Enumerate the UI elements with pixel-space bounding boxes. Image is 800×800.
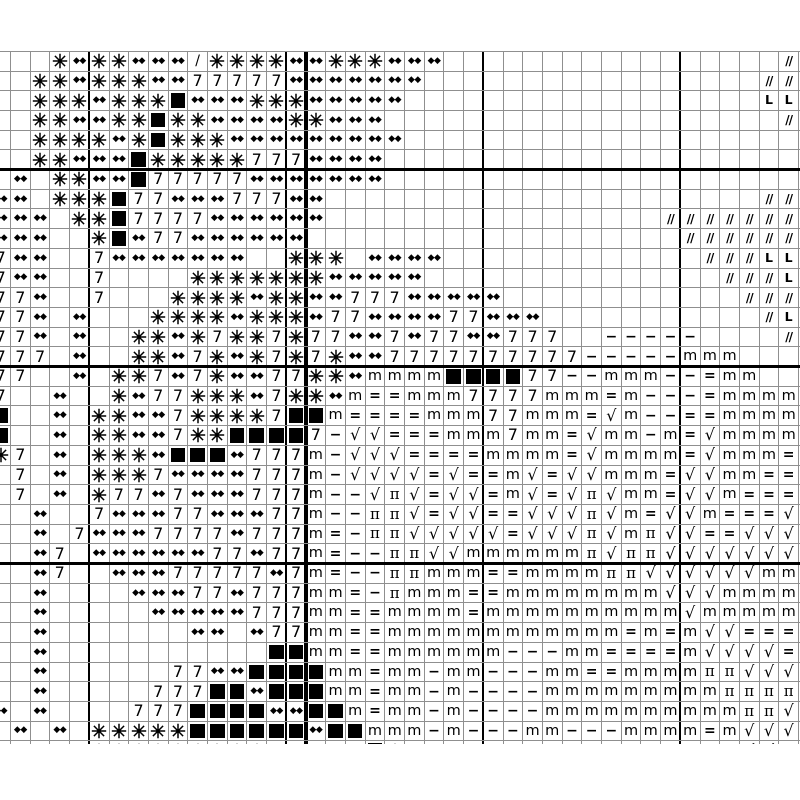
double-diamond-icon: ◆◆ — [349, 175, 362, 184]
grid-cell: ◆◆ — [89, 150, 109, 170]
grid-line-horizontal — [0, 168, 800, 170]
minus-symbol: − — [665, 330, 677, 344]
double-diamond-icon: ◆◆ — [290, 76, 303, 85]
letter-m-symbol: m — [565, 645, 579, 660]
grid-cell: 7 — [385, 327, 405, 347]
letter-m-symbol: m — [309, 507, 323, 522]
grid-cell: ◆◆ — [247, 170, 267, 190]
digit-seven-symbol: 7 — [291, 506, 301, 522]
grid-cell: = — [326, 524, 346, 544]
digit-seven-symbol: 7 — [508, 408, 518, 424]
grid-cell: m — [779, 386, 799, 406]
eight-spoke-star-icon — [170, 723, 186, 739]
grid-cell: − — [503, 642, 523, 662]
double-diamond-icon: ◆◆ — [309, 214, 322, 223]
digit-seven-symbol: 7 — [153, 526, 163, 542]
letter-m-symbol: m — [447, 428, 461, 443]
square-root-symbol: √ — [705, 644, 715, 660]
grid-cell: − — [464, 701, 484, 721]
grid-cell: = — [345, 603, 365, 623]
double-slash-symbol: // — [706, 252, 713, 264]
pi-symbol: π — [390, 507, 400, 522]
grid-cell: m — [720, 721, 740, 741]
double-diamond-icon: ◆◆ — [53, 726, 66, 735]
grid-line-vertical — [719, 51, 720, 744]
square-root-symbol: √ — [468, 487, 478, 503]
grid-cell: ◆◆ — [30, 268, 50, 288]
square-root-symbol: √ — [724, 624, 734, 640]
digit-seven-symbol: 7 — [0, 368, 6, 384]
eight-spoke-star-icon — [71, 211, 87, 227]
grid-cell: = — [562, 426, 582, 446]
letter-m-symbol: m — [722, 389, 736, 404]
letter-m-symbol: m — [742, 448, 756, 463]
grid-cell: 7 — [523, 386, 543, 406]
grid-cell: ◆◆ — [50, 485, 70, 505]
eight-spoke-star-icon — [268, 309, 284, 325]
grid-cell: m — [405, 682, 425, 702]
grid-cell: 7 — [424, 327, 444, 347]
grid-cell — [188, 130, 208, 150]
grid-cell: √ — [779, 721, 799, 741]
grid-cell: ◆◆ — [188, 603, 208, 623]
double-diamond-icon: ◆◆ — [309, 313, 322, 322]
grid-cell: m — [306, 485, 326, 505]
digit-seven-symbol: 7 — [193, 506, 203, 522]
digit-seven-symbol: 7 — [311, 743, 321, 744]
grid-cell: ◆◆ — [345, 327, 365, 347]
double-slash-symbol: // — [766, 292, 773, 304]
grid-cell: L — [759, 248, 779, 268]
grid-cell: m — [602, 583, 622, 603]
digit-seven-symbol: 7 — [173, 526, 183, 542]
grid-cell: 7 — [424, 347, 444, 367]
digit-seven-symbol: 7 — [193, 565, 203, 581]
double-slash-symbol: // — [785, 331, 792, 343]
letter-m-symbol: m — [585, 586, 599, 601]
equals-symbol: = — [369, 645, 381, 659]
grid-cell: m — [582, 623, 602, 643]
grid-cell: m — [720, 583, 740, 603]
grid-cell: 7 — [267, 623, 287, 643]
grid-cell: m — [503, 544, 523, 564]
grid-cell — [247, 406, 267, 426]
double-diamond-icon: ◆◆ — [231, 254, 244, 263]
grid-cell: √ — [444, 524, 464, 544]
letter-m-symbol: m — [742, 468, 756, 483]
grid-cell: ◆◆ — [247, 504, 267, 524]
square-root-symbol: √ — [705, 467, 715, 483]
grid-cell: // — [759, 189, 779, 209]
grid-cell: 7 — [89, 288, 109, 308]
grid-cell: = — [759, 485, 779, 505]
digit-seven-symbol: 7 — [252, 467, 262, 483]
grid-cell: m — [385, 662, 405, 682]
equals-symbol: = — [665, 488, 677, 502]
pi-symbol: π — [705, 664, 715, 679]
grid-cell: = — [700, 721, 720, 741]
double-diamond-icon: ◆◆ — [172, 608, 185, 617]
grid-cell: m — [464, 406, 484, 426]
letter-m-symbol: m — [742, 586, 756, 601]
grid-cell: ◆◆ — [345, 130, 365, 150]
letter-m-symbol: m — [506, 586, 520, 601]
digit-seven-symbol: 7 — [291, 447, 301, 463]
letter-m-symbol: m — [525, 546, 539, 561]
grid-cell — [168, 288, 188, 308]
eight-spoke-star-icon — [111, 743, 127, 744]
grid-cell: ◆◆ — [385, 71, 405, 91]
grid-cell — [267, 91, 287, 111]
grid-cell: // — [759, 268, 779, 288]
filled-square-icon — [0, 428, 8, 443]
digit-seven-symbol: 7 — [55, 546, 65, 562]
digit-seven-symbol: 7 — [94, 290, 104, 306]
grid-cell: ◆◆ — [306, 307, 326, 327]
grid-cell: 7 — [542, 367, 562, 387]
grid-cell: ◆◆ — [89, 91, 109, 111]
grid-cell: ◆◆ — [129, 229, 149, 249]
digit-seven-symbol: 7 — [488, 349, 498, 365]
eight-spoke-star-icon — [111, 368, 127, 384]
grid-line-horizontal — [0, 386, 800, 387]
grid-cell: / — [188, 51, 208, 71]
digit-seven-symbol: 7 — [508, 329, 518, 345]
letter-m-symbol: m — [466, 665, 480, 680]
minus-symbol: − — [645, 350, 657, 364]
letter-m-symbol: m — [486, 448, 500, 463]
double-diamond-icon: ◆◆ — [0, 214, 7, 223]
digit-seven-symbol: 7 — [15, 349, 25, 365]
grid-line-vertical — [49, 51, 50, 744]
grid-cell: ◆◆ — [326, 91, 346, 111]
grid-cell: π — [582, 524, 602, 544]
filled-square-icon — [446, 369, 461, 384]
grid-cell: 7 — [542, 347, 562, 367]
grid-cell: 7 — [188, 347, 208, 367]
filled-square-icon — [289, 724, 304, 739]
grid-cell: = — [759, 504, 779, 524]
grid-cell — [267, 662, 287, 682]
grid-cell — [89, 229, 109, 249]
eight-spoke-star-icon — [170, 743, 186, 744]
grid-cell: ◆◆ — [70, 150, 90, 170]
pi-symbol: π — [646, 526, 656, 541]
minus-symbol: − — [665, 389, 677, 403]
grid-cell: = — [779, 445, 799, 465]
grid-cell: − — [326, 465, 346, 485]
square-root-symbol: √ — [744, 743, 754, 744]
double-diamond-icon: ◆◆ — [290, 57, 303, 66]
grid-cell: m — [306, 504, 326, 524]
filled-square-icon — [486, 369, 501, 384]
grid-cell: ◆◆ — [326, 71, 346, 91]
grid-cell: // — [739, 268, 759, 288]
grid-cell: ◆◆ — [444, 288, 464, 308]
grid-cell: 7 — [0, 268, 11, 288]
grid-cell: √ — [405, 465, 425, 485]
equals-symbol: = — [566, 428, 578, 442]
grid-cell: m — [326, 623, 346, 643]
equals-symbol: = — [605, 645, 617, 659]
grid-cell — [227, 406, 247, 426]
grid-cell: ◆◆ — [227, 465, 247, 485]
filled-square-icon — [0, 408, 8, 423]
grid-cell: √ — [444, 544, 464, 564]
grid-cell — [89, 465, 109, 485]
grid-cell — [109, 229, 129, 249]
letter-m-symbol: m — [644, 487, 658, 502]
eight-spoke-star-icon — [328, 368, 344, 384]
grid-cell: ◆◆ — [148, 248, 168, 268]
grid-cell: // — [720, 248, 740, 268]
grid-line-horizontal — [0, 149, 800, 150]
eight-spoke-star-icon — [209, 743, 225, 744]
grid-cell: m — [720, 406, 740, 426]
grid-cell: 7 — [188, 682, 208, 702]
square-root-symbol: √ — [764, 644, 774, 660]
double-diamond-icon: ◆◆ — [329, 135, 342, 144]
grid-cell: ◆◆ — [129, 564, 149, 584]
digit-seven-symbol: 7 — [271, 191, 281, 207]
letter-m-symbol: m — [703, 507, 717, 522]
grid-cell: π — [739, 701, 759, 721]
minus-symbol: − — [586, 724, 598, 738]
double-diamond-icon: ◆◆ — [191, 254, 204, 263]
double-diamond-icon: ◆◆ — [408, 313, 421, 322]
grid-cell: ◆◆ — [50, 445, 70, 465]
grid-cell: √ — [739, 524, 759, 544]
letter-L-symbol: L — [785, 311, 793, 324]
grid-cell: ◆◆ — [109, 248, 129, 268]
grid-cell: π — [582, 504, 602, 524]
digit-seven-symbol: 7 — [271, 487, 281, 503]
square-root-symbol: √ — [744, 664, 754, 680]
square-root-symbol: √ — [665, 585, 675, 601]
letter-m-symbol: m — [309, 566, 323, 581]
grid-cell: 7 — [405, 347, 425, 367]
grid-line-vertical — [246, 51, 247, 744]
grid-cell: ◆◆ — [247, 386, 267, 406]
double-diamond-icon: ◆◆ — [388, 313, 401, 322]
grid-cell: m — [424, 386, 444, 406]
grid-cell: √ — [680, 524, 700, 544]
equals-symbol: = — [724, 527, 736, 541]
double-diamond-icon: ◆◆ — [93, 549, 106, 558]
grid-cell: = — [424, 465, 444, 485]
letter-m-symbol: m — [624, 743, 638, 744]
letter-m-symbol: m — [624, 448, 638, 463]
eight-spoke-star-icon — [131, 743, 147, 744]
grid-cell: = — [483, 504, 503, 524]
grid-cell — [89, 189, 109, 209]
grid-cell: ◆◆ — [30, 662, 50, 682]
double-diamond-icon: ◆◆ — [388, 57, 401, 66]
grid-cell: m — [503, 445, 523, 465]
letter-m-symbol: m — [683, 684, 697, 699]
double-diamond-icon: ◆◆ — [172, 470, 185, 479]
grid-line-horizontal — [0, 681, 800, 682]
minus-symbol: − — [330, 468, 342, 482]
grid-cell: 7 — [208, 170, 228, 190]
grid-cell — [89, 721, 109, 741]
grid-cell: m — [306, 603, 326, 623]
double-diamond-icon: ◆◆ — [231, 214, 244, 223]
letter-m-symbol: m — [644, 625, 658, 640]
grid-cell — [227, 150, 247, 170]
grid-cell: m — [365, 721, 385, 741]
grid-cell — [208, 51, 228, 71]
minus-symbol: − — [507, 665, 519, 679]
grid-cell: − — [503, 701, 523, 721]
grid-cell — [129, 110, 149, 130]
grid-cell: m — [582, 603, 602, 623]
grid-cell: − — [365, 564, 385, 584]
grid-cell: m — [562, 386, 582, 406]
double-diamond-icon: ◆◆ — [211, 195, 224, 204]
digit-seven-symbol: 7 — [567, 349, 577, 365]
grid-cell: m — [641, 721, 661, 741]
grid-cell: m — [523, 564, 543, 584]
grid-cell: m — [680, 347, 700, 367]
letter-m-symbol: m — [624, 527, 638, 542]
equals-symbol: = — [763, 468, 775, 482]
grid-cell: ◆◆ — [89, 524, 109, 544]
grid-cell: m — [621, 662, 641, 682]
double-diamond-icon: ◆◆ — [34, 628, 47, 637]
grid-cell: = — [464, 583, 484, 603]
grid-cell: ◆◆ — [424, 307, 444, 327]
letter-m-symbol: m — [466, 428, 480, 443]
grid-cell: 7 — [188, 564, 208, 584]
digit-seven-symbol: 7 — [193, 211, 203, 227]
filled-square-icon — [230, 724, 245, 739]
double-diamond-icon: ◆◆ — [34, 549, 47, 558]
equals-symbol: = — [763, 488, 775, 502]
digit-seven-symbol: 7 — [153, 467, 163, 483]
grid-cell: m — [542, 544, 562, 564]
double-diamond-icon: ◆◆ — [369, 175, 382, 184]
pi-symbol: π — [390, 586, 400, 601]
double-diamond-icon: ◆◆ — [34, 234, 47, 243]
grid-line-vertical — [207, 51, 208, 744]
grid-cell: m — [306, 445, 326, 465]
equals-symbol: = — [605, 665, 617, 679]
grid-cell: // — [680, 229, 700, 249]
grid-cell: ◆◆ — [30, 623, 50, 643]
grid-line-vertical — [345, 51, 346, 744]
letter-m-symbol: m — [486, 645, 500, 660]
grid-cell: √ — [483, 524, 503, 544]
square-root-symbol: √ — [685, 565, 695, 581]
grid-cell: m — [680, 721, 700, 741]
double-diamond-icon: ◆◆ — [369, 273, 382, 282]
grid-cell — [89, 485, 109, 505]
grid-cell: ◆◆ — [30, 307, 50, 327]
grid-cell: m — [582, 682, 602, 702]
equals-symbol: = — [743, 488, 755, 502]
square-root-symbol: √ — [547, 526, 557, 542]
grid-cell — [345, 721, 365, 741]
letter-m-symbol: m — [644, 586, 658, 601]
double-slash-symbol: // — [746, 252, 753, 264]
grid-line-horizontal — [0, 51, 800, 52]
grid-cell — [129, 327, 149, 347]
grid-cell: √ — [700, 544, 720, 564]
eight-spoke-star-icon — [131, 112, 147, 128]
minus-symbol: − — [349, 527, 361, 541]
grid-cell: ◆◆ — [345, 91, 365, 111]
grid-cell: 7 — [148, 209, 168, 229]
double-diamond-icon: ◆◆ — [231, 372, 244, 381]
grid-cell: m — [405, 603, 425, 623]
grid-cell: 7 — [267, 327, 287, 347]
filled-square-icon — [289, 684, 304, 699]
grid-cell: √ — [661, 544, 681, 564]
eight-spoke-star-icon — [91, 723, 107, 739]
grid-cell: ◆◆ — [148, 51, 168, 71]
grid-cell: 7 — [148, 701, 168, 721]
eight-spoke-star-icon — [268, 93, 284, 109]
double-diamond-icon: ◆◆ — [0, 195, 7, 204]
grid-cell: = — [542, 485, 562, 505]
grid-cell — [247, 662, 267, 682]
double-diamond-icon: ◆◆ — [329, 116, 342, 125]
letter-m-symbol: m — [427, 389, 441, 404]
grid-cell: √ — [602, 524, 622, 544]
double-diamond-icon: ◆◆ — [428, 313, 441, 322]
grid-cell: = — [365, 386, 385, 406]
grid-cell: ◆◆ — [267, 170, 287, 190]
letter-m-symbol: m — [447, 389, 461, 404]
grid-cell: m — [464, 544, 484, 564]
grid-cell: ◆◆ — [227, 485, 247, 505]
digit-seven-symbol: 7 — [0, 250, 6, 266]
grid-cell: = — [424, 485, 444, 505]
double-slash-symbol: // — [785, 114, 792, 126]
grid-cell: m — [602, 603, 622, 623]
grid-cell: // — [739, 229, 759, 249]
grid-cell: 7 — [0, 367, 11, 387]
grid-cell — [326, 51, 346, 71]
grid-cell: ◆◆ — [70, 347, 90, 367]
double-diamond-icon: ◆◆ — [112, 175, 125, 184]
grid-cell — [188, 721, 208, 741]
double-diamond-icon: ◆◆ — [93, 529, 106, 538]
grid-cell: m — [680, 623, 700, 643]
grid-cell — [208, 347, 228, 367]
grid-line-horizontal — [0, 425, 800, 426]
grid-cell: − — [483, 721, 503, 741]
grid-cell: ◆◆ — [30, 248, 50, 268]
grid-cell: ◆◆ — [365, 130, 385, 150]
letter-m-symbol: m — [722, 369, 736, 384]
square-root-symbol: √ — [587, 467, 597, 483]
grid-cell: 7 — [267, 150, 287, 170]
grid-cell: m — [602, 623, 622, 643]
minus-symbol: − — [645, 330, 657, 344]
letter-m-symbol: m — [525, 428, 539, 443]
double-diamond-icon: ◆◆ — [309, 135, 322, 144]
square-root-symbol: √ — [784, 703, 794, 719]
double-diamond-icon: ◆◆ — [369, 135, 382, 144]
double-diamond-icon: ◆◆ — [14, 726, 27, 735]
eight-spoke-star-icon — [131, 467, 147, 483]
grid-cell: 7 — [464, 307, 484, 327]
letter-m-symbol: m — [506, 448, 520, 463]
letter-m-symbol: m — [644, 743, 658, 744]
grid-line-horizontal — [0, 662, 800, 663]
